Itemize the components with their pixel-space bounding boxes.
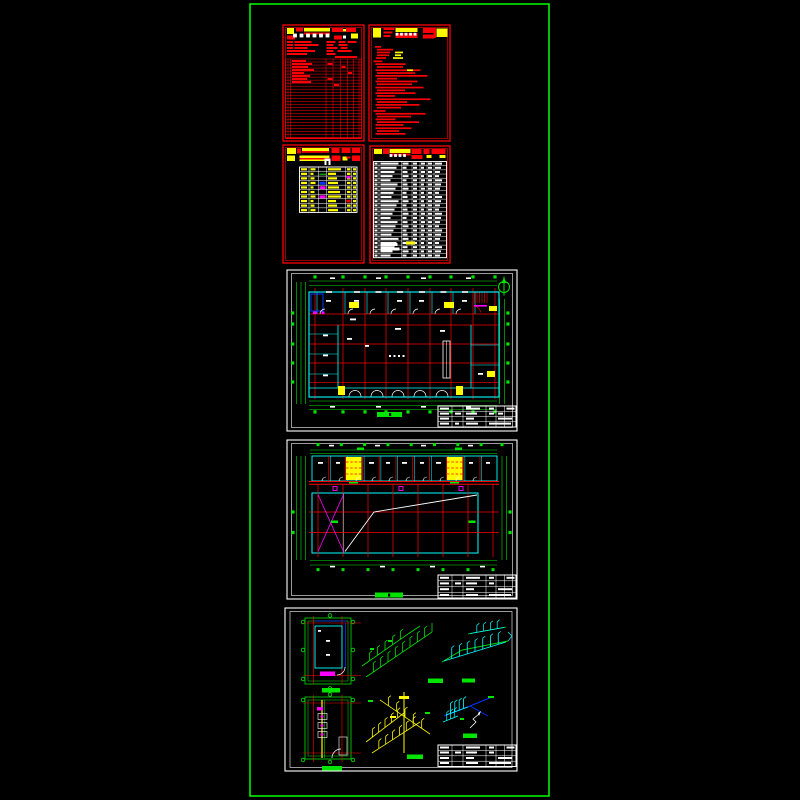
sheet-details-isometrics — [285, 608, 517, 771]
sheet-equipment-table — [370, 146, 450, 263]
sheet-general-notes — [369, 25, 450, 141]
plan-first-floor — [287, 270, 517, 431]
cad-drawing-viewport — [0, 0, 800, 800]
cad-canvas — [0, 0, 800, 800]
plan-roof — [287, 440, 517, 599]
sheet-legend — [283, 145, 364, 263]
sheet-spec-table — [283, 25, 364, 141]
